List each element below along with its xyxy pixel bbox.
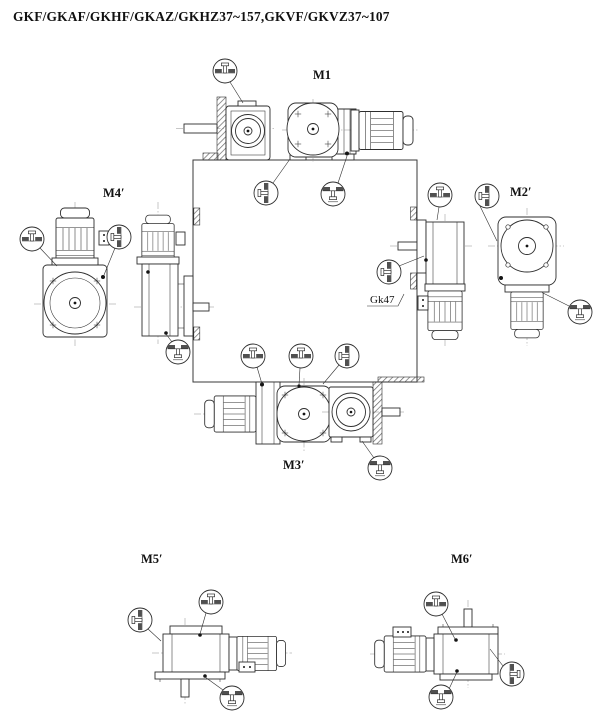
page-title: GKF/GKAF/GKHF/GKAZ/GKHZ37~157,GKVF/GKVZ3… bbox=[13, 9, 390, 24]
oil-drain-plug-symbol bbox=[166, 334, 190, 364]
m3-wall-mounted-shaft-view bbox=[322, 377, 424, 444]
m2-wall-mounted-side-view bbox=[390, 207, 472, 348]
oil-level-plug-symbol bbox=[254, 159, 290, 205]
m4-front-view-with-motor bbox=[34, 202, 116, 346]
oil-drain-plug-symbol bbox=[321, 156, 347, 206]
m3-front-view-with-motor bbox=[194, 378, 340, 452]
oil-level-plug-symbol bbox=[323, 344, 359, 384]
vent-plug-symbol bbox=[289, 344, 313, 385]
oil-level-plug-symbol bbox=[128, 608, 161, 641]
m2-front-view-with-motor bbox=[488, 208, 564, 346]
label-m1: M1 bbox=[313, 68, 331, 82]
vent-plug-symbol bbox=[20, 227, 57, 266]
gearbox-ref-label: Gk47 bbox=[370, 294, 395, 306]
diagram-page: GKF/GKAF/GKHF/GKAZ/GKHZ37~157,GKVF/GKVZ3… bbox=[0, 0, 600, 724]
oil-drain-plug-symbol bbox=[205, 677, 244, 710]
m1-front-view-with-motor bbox=[282, 99, 418, 162]
vent-plug-symbol bbox=[428, 183, 452, 220]
gearbox-ref-annotation: Gk47 bbox=[367, 294, 404, 306]
oil-drain-plug-symbol bbox=[362, 441, 392, 480]
m4-wall-mounted-side-view bbox=[134, 202, 214, 344]
label-m4: M4′ bbox=[103, 186, 125, 200]
label-m3: M3′ bbox=[283, 458, 305, 472]
label-m2: M2′ bbox=[510, 185, 532, 199]
oil-level-plug-symbol bbox=[104, 225, 131, 275]
mounting-position-diagram: GKF/GKAF/GKHF/GKAZ/GKHZ37~157,GKVF/GKVZ3… bbox=[0, 0, 600, 724]
oil-level-plug-symbol bbox=[475, 184, 499, 241]
oil-drain-plug-symbol bbox=[543, 293, 592, 324]
vent-plug-symbol bbox=[241, 344, 265, 384]
vent-plug-symbol bbox=[213, 59, 243, 103]
label-m6: M6′ bbox=[451, 552, 473, 566]
label-m5: M5′ bbox=[141, 552, 163, 566]
m1-output-shaft-view bbox=[176, 97, 276, 160]
